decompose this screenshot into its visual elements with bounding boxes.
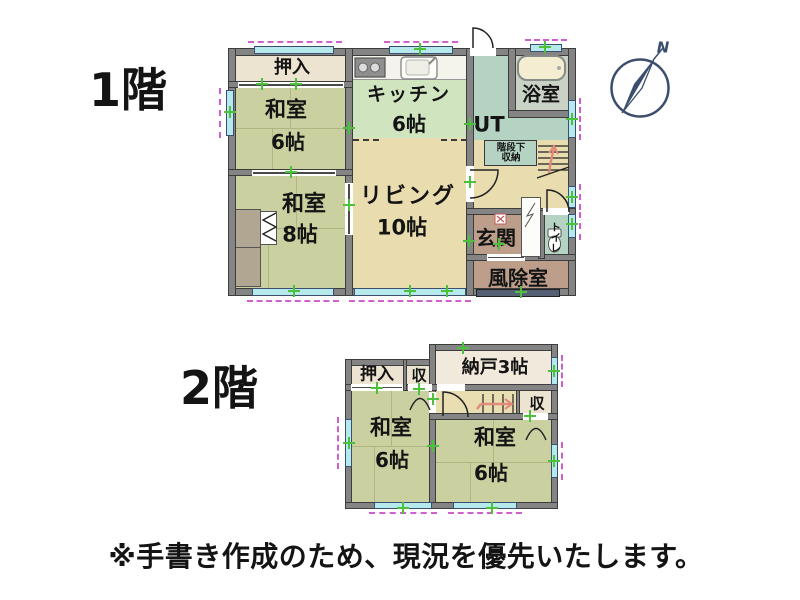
window-dash (337, 417, 339, 469)
kitchen-living-open-boundary (353, 139, 379, 141)
room-label-living: リビング (360, 186, 456, 208)
room-label-toilet: トイレ (550, 221, 561, 253)
floor2-title: 2階 (180, 365, 258, 411)
measure-marker (414, 43, 426, 55)
footnote: ※手書き作成のため、現況を優先いたします。 (109, 543, 704, 571)
measure-marker (441, 285, 453, 297)
nando-door-opening (437, 384, 465, 391)
room-label-washitsu6-1f: 和室 (265, 100, 307, 121)
window-dash (247, 300, 339, 302)
compass-icon (604, 42, 684, 128)
genkan-windbreak-door (487, 254, 525, 261)
room-size-washitsu8-1f: 8帖 (282, 225, 318, 246)
room-size-washitsu-right-2f: 6帖 (474, 463, 508, 483)
window-dash (579, 98, 581, 140)
toilet-door-opening (543, 208, 569, 215)
floor-plan-canvas: N 1階 押入 和室 6帖 和室 8帖 キッチン 6帖 リビング 10帖 UT … (0, 0, 800, 600)
measure-marker (464, 118, 476, 130)
room-size-kitchen: 6帖 (392, 114, 426, 134)
window-dash (561, 442, 563, 480)
tatami-line (349, 446, 432, 447)
measure-marker (413, 383, 425, 395)
window-dash (248, 41, 342, 43)
measure-marker (457, 342, 469, 354)
wall (429, 344, 436, 509)
window (254, 46, 334, 54)
room-label-bath: 浴室 (522, 86, 560, 105)
measure-marker (427, 440, 439, 452)
room-label-nando: 納戸3帖 (462, 359, 529, 377)
measure-marker (256, 78, 268, 90)
measure-marker (285, 166, 297, 178)
room-label-closet-left-2f: 収 (411, 369, 426, 384)
wall (429, 344, 558, 351)
measure-marker (290, 78, 302, 90)
kitchen-counter (351, 54, 466, 80)
backdoor-opening (470, 48, 496, 56)
measure-marker (548, 455, 560, 467)
backdoor-arc-icon (473, 28, 493, 48)
measure-marker (404, 285, 416, 297)
room-label-windbreak: 風除室 (488, 268, 548, 288)
tatami-line (231, 128, 351, 129)
room-label-oshiire-1f: 押入 (274, 59, 310, 77)
shoe-cabinet (521, 197, 541, 257)
measure-marker (464, 176, 476, 188)
measure-marker (524, 410, 536, 422)
measure-marker (515, 286, 527, 298)
measure-marker (343, 199, 355, 211)
kitchen-living-open-boundary (441, 139, 467, 141)
wall (516, 390, 520, 414)
room-label-washitsu-right-2f: 和室 (474, 428, 516, 449)
window-dash (579, 212, 581, 240)
measure-marker (539, 41, 551, 53)
measure-marker (343, 122, 355, 134)
measure-marker (548, 365, 560, 377)
closet-folding-door-area (260, 211, 277, 245)
room-label-kitchen: キッチン (367, 86, 451, 105)
compass-north-label: N (657, 41, 670, 56)
window-dash (579, 184, 581, 210)
window-dash (448, 512, 522, 514)
window-dash (561, 355, 563, 387)
tatami-line (470, 462, 471, 507)
measure-marker (493, 238, 505, 250)
room-label-washitsu-left-2f: 和室 (370, 418, 412, 439)
window-dash (349, 300, 471, 302)
measure-marker (288, 285, 300, 297)
room-label-ut: UT (473, 115, 504, 136)
measure-marker (224, 106, 236, 118)
measure-marker (566, 218, 578, 230)
measure-marker (397, 502, 409, 514)
measure-marker (566, 191, 578, 203)
room-label-stair-storage-2: 収納 (501, 153, 520, 163)
room-label-washitsu8-1f: 和室 (282, 194, 326, 216)
room-size-living: 10帖 (377, 218, 427, 239)
wall (403, 359, 407, 391)
measure-marker (371, 382, 383, 394)
room-size-washitsu-left-2f: 6帖 (375, 450, 409, 470)
window (453, 502, 517, 509)
room-label-oshiire-2f: 押入 (360, 367, 394, 384)
floor1-title: 1階 (89, 67, 167, 113)
wall (508, 48, 516, 118)
room-size-washitsu6-1f: 6帖 (271, 132, 305, 152)
measure-marker (343, 437, 355, 449)
measure-marker (463, 235, 475, 247)
measure-marker (427, 393, 439, 405)
window-dash (219, 88, 221, 138)
measure-marker (486, 502, 498, 514)
measure-marker (566, 113, 578, 125)
